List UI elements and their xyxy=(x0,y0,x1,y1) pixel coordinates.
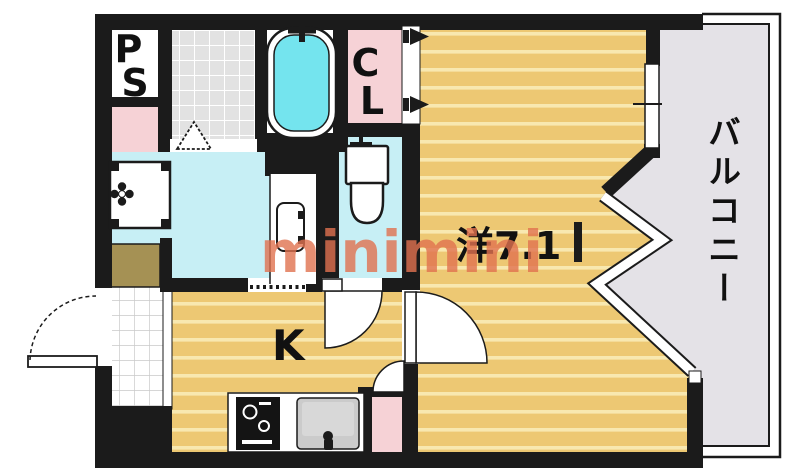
washing-machine-pan-icon xyxy=(110,162,170,228)
pipe-space-label: P S xyxy=(114,27,155,105)
refrigerator-space xyxy=(372,397,404,452)
shoe-cabinet xyxy=(106,244,160,287)
western-room-door-leaf xyxy=(405,292,416,363)
entrance-tile-floor xyxy=(106,284,163,409)
entrance-door-leaf xyxy=(28,356,97,367)
floor-plan-drawing: P S C L 洋7.1 K バルコニー minimini xyxy=(0,0,800,475)
entrance-opening xyxy=(95,288,112,366)
window xyxy=(645,64,659,148)
watermark: minimini xyxy=(260,218,543,286)
entrance-door-swing-arc xyxy=(30,296,96,360)
kitchen-label: K xyxy=(272,321,306,370)
balcony-label: バルコニー xyxy=(703,115,742,310)
sink-icon xyxy=(297,398,359,450)
stove-icon xyxy=(236,397,280,450)
meter-box xyxy=(112,105,158,152)
bathroom-tile-floor xyxy=(170,24,258,152)
entrance-step xyxy=(163,285,172,409)
window-tick-mark xyxy=(574,222,582,262)
toilet-icon xyxy=(346,133,388,223)
bathtub-icon xyxy=(267,18,336,138)
kitchen-counter xyxy=(228,393,364,452)
floor-plan: P S C L 洋7.1 K バルコニー minimini xyxy=(0,0,800,475)
